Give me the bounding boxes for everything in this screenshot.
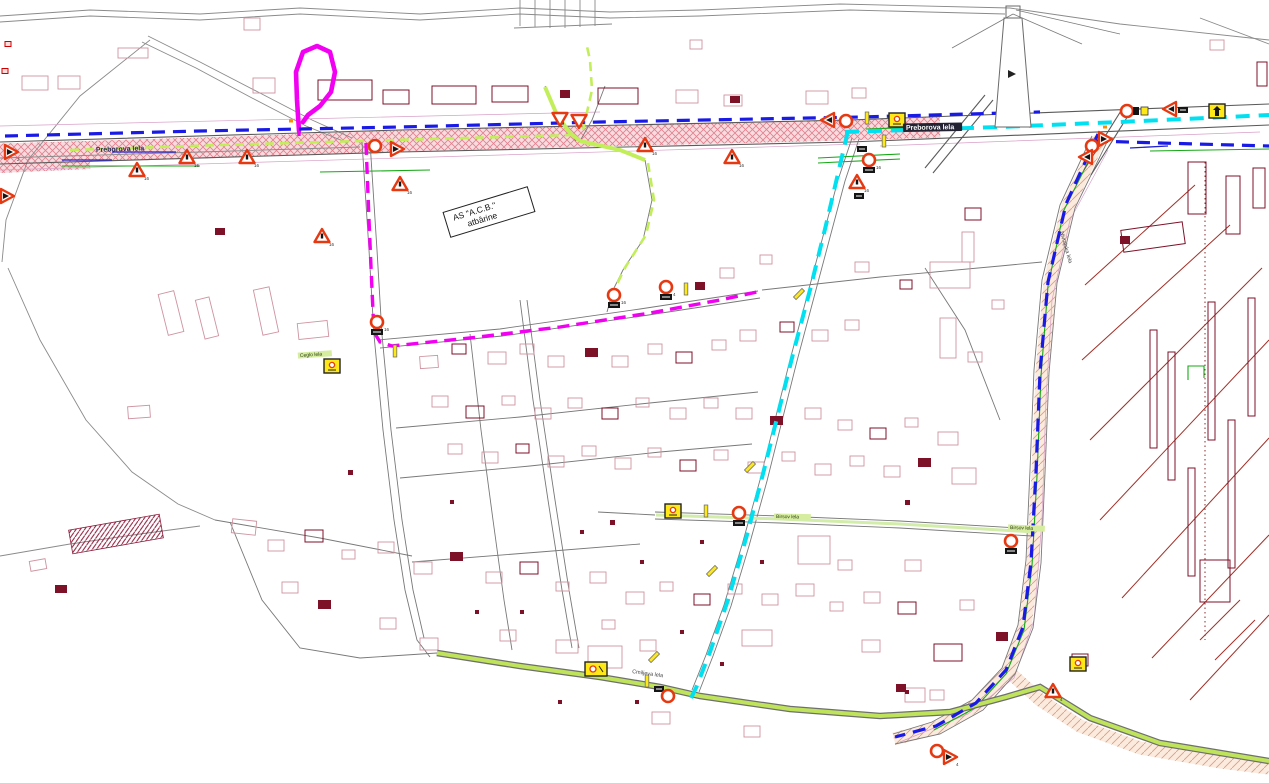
building-outline — [466, 406, 484, 418]
map-line — [527, 300, 579, 648]
building-outline — [670, 408, 686, 419]
map-line — [1152, 535, 1269, 658]
building-outline — [898, 602, 916, 614]
building-outline — [1253, 168, 1265, 208]
map-line — [762, 262, 1042, 290]
map-line — [692, 138, 852, 690]
map-line — [818, 154, 900, 158]
building-outline — [962, 232, 974, 262]
building-outline — [884, 466, 900, 477]
building-outline — [812, 330, 828, 341]
sign-plate — [854, 193, 864, 199]
building-outline — [930, 262, 970, 288]
sign-number-tag: 4 — [673, 292, 676, 297]
building-outline — [855, 262, 869, 272]
acb-label-box: AS "A.C.B."atbârine — [443, 187, 535, 238]
sign-tri: 16 — [393, 177, 413, 195]
building-outline — [676, 90, 698, 103]
sign-number-tag: 16 — [407, 190, 413, 195]
sign-circle — [662, 690, 674, 702]
map-line — [613, 160, 652, 290]
building-outline — [660, 582, 673, 591]
building-outline — [850, 456, 864, 466]
building-outline — [448, 444, 462, 454]
sign-tri: 16 — [850, 175, 870, 193]
building-outline — [118, 48, 148, 58]
building-outline — [905, 560, 921, 571]
sign-barD — [744, 461, 755, 472]
sign-circleP: 16 — [371, 316, 390, 335]
building-outline — [905, 418, 918, 427]
building-outline — [420, 355, 439, 368]
building-outline — [780, 322, 794, 332]
building-outline — [918, 458, 931, 467]
building-outline — [231, 519, 256, 535]
building-outline — [488, 352, 506, 364]
building-outline — [806, 91, 828, 104]
street-label: Birsov lela — [774, 513, 811, 520]
sign-number-tag: 16 — [621, 300, 627, 305]
map-line — [396, 392, 758, 428]
sign-circle — [840, 115, 852, 127]
map-line — [320, 170, 430, 172]
building-outline — [420, 638, 438, 650]
building-outline — [996, 632, 1008, 641]
building-outline — [268, 540, 284, 551]
building-outline — [636, 398, 649, 407]
map-line — [900, 150, 1108, 742]
route-mag — [366, 143, 757, 346]
route-cyan — [690, 131, 848, 700]
building-outline — [720, 268, 734, 278]
building-outline — [798, 536, 830, 564]
building-outline — [582, 446, 596, 456]
building-outline — [58, 76, 80, 89]
building-outline — [870, 428, 886, 439]
building-outline — [845, 320, 859, 330]
building-outline — [796, 584, 814, 596]
building-outline — [694, 594, 710, 605]
sign-circle — [369, 140, 381, 152]
building-outline — [1168, 352, 1175, 480]
sign-plate — [1178, 107, 1188, 113]
building-outline — [486, 572, 502, 583]
sign-bar — [704, 505, 708, 517]
building-outline — [862, 640, 880, 652]
map-line — [370, 142, 424, 638]
building-outline — [742, 630, 772, 646]
sign-barD — [706, 565, 717, 576]
map-line — [700, 4, 1010, 10]
svg-text:Preborova lela: Preborova lela — [906, 124, 954, 132]
building-outline — [615, 458, 631, 469]
building-outline — [762, 594, 778, 605]
map-line — [362, 142, 430, 657]
sign-circle — [1121, 105, 1133, 117]
sign-number-tag: 4 — [956, 762, 959, 767]
map-line — [1085, 185, 1195, 285]
sign-bar — [393, 345, 397, 357]
svg-text:Birsov lela: Birsov lela — [1010, 525, 1033, 532]
sign-dotO — [289, 120, 293, 123]
building-outline — [500, 630, 516, 641]
sign-plate — [857, 146, 867, 152]
building-outline — [590, 572, 606, 583]
sign-barD — [793, 288, 804, 299]
sign-bar — [684, 283, 688, 295]
svg-text:Birsov lela: Birsov lela — [776, 514, 799, 520]
building-outline — [940, 318, 956, 358]
building-outline — [414, 562, 432, 574]
building-outline — [680, 630, 684, 634]
building-outline — [838, 560, 852, 570]
building-outline — [652, 712, 670, 724]
building-outline — [432, 396, 448, 407]
building-outline — [938, 432, 958, 445]
building-outline — [568, 398, 582, 408]
map-line — [895, 140, 1108, 744]
building-outline — [900, 280, 912, 289]
building-outline — [318, 600, 331, 609]
building-outline — [556, 640, 578, 653]
map-line — [598, 512, 655, 515]
sign-bar — [882, 135, 886, 147]
traffic-plan-map: 21616161616161616161616444 Preborova lel… — [0, 0, 1269, 783]
building-outline — [556, 582, 569, 591]
map-line — [1090, 268, 1262, 440]
route-ltg — [614, 163, 654, 290]
map-line — [470, 334, 512, 650]
sign-dotO — [1103, 126, 1107, 129]
road-band — [894, 138, 1100, 739]
building-outline — [516, 444, 529, 453]
svg-text:Ceglo lela: Ceglo lela — [300, 351, 323, 359]
building-outline — [690, 40, 702, 49]
map-line — [1190, 615, 1269, 700]
building-outline — [695, 282, 705, 290]
building-outline — [29, 559, 46, 572]
building-outline — [548, 356, 564, 367]
building-outline — [475, 610, 479, 614]
building-outline — [760, 560, 764, 564]
building-outline — [602, 620, 615, 629]
building-outline — [1210, 40, 1224, 50]
sign-number-tag: 16 — [864, 188, 870, 193]
building-outline — [1226, 176, 1240, 234]
sign-tri: 16 — [725, 150, 745, 168]
building-outline — [342, 550, 355, 559]
building-outline — [244, 18, 260, 30]
building-outline — [952, 468, 976, 484]
sign-plate2 — [1133, 107, 1148, 115]
building-outline — [700, 540, 704, 544]
sign-number-tag: 16 — [329, 242, 335, 247]
building-outline — [215, 228, 225, 235]
sign-number-tag: 16 — [144, 176, 150, 181]
sign-boardC — [585, 662, 607, 676]
building-outline — [195, 297, 218, 339]
building-outline — [815, 464, 831, 475]
building-outline — [680, 460, 696, 471]
building-outline — [712, 340, 726, 350]
sign-board — [665, 504, 681, 518]
building-outline — [282, 582, 298, 593]
building-outline — [548, 456, 564, 467]
sign-plateR — [5, 42, 11, 47]
building-outline — [22, 76, 48, 90]
building-outline — [730, 96, 740, 103]
route-gstreet — [656, 515, 1034, 532]
map-line — [1100, 340, 1269, 520]
building-outline — [640, 560, 644, 564]
building-outline — [1150, 330, 1157, 448]
sign-circleP: 4 — [660, 281, 676, 300]
building-outline — [560, 90, 570, 98]
building-outline — [520, 562, 538, 574]
map-canvas: 21616161616161616161616444 Preborova lel… — [0, 0, 1269, 783]
building-outline — [610, 520, 615, 525]
building-outline — [930, 690, 944, 700]
building-outline — [297, 320, 329, 339]
building-outline — [838, 420, 852, 430]
building-outline — [1120, 236, 1130, 244]
building-outline — [635, 700, 639, 704]
building-outline — [992, 300, 1004, 309]
building-outline — [676, 352, 692, 363]
building-outline — [558, 700, 562, 704]
map-line — [412, 544, 640, 562]
sign-number-tag: 16 — [194, 163, 200, 168]
building-outline — [864, 592, 880, 603]
building-outline — [714, 450, 728, 460]
map-line — [818, 159, 900, 163]
building-outline — [934, 644, 962, 661]
map-line — [1215, 620, 1255, 660]
building-outline — [905, 690, 909, 694]
building-outline — [502, 396, 515, 405]
map-line — [1188, 366, 1204, 380]
building-outline — [128, 405, 151, 419]
street-label: Preborova lela — [903, 123, 962, 133]
building-outline — [158, 291, 184, 336]
building-outline — [1188, 162, 1206, 214]
building-outline — [602, 408, 618, 419]
building-outline — [1248, 298, 1255, 416]
street-label: Birsov lela — [1008, 524, 1045, 532]
building-outline — [852, 88, 866, 98]
street-label: Ceglo lela — [298, 350, 332, 359]
map-line — [378, 291, 758, 340]
building-outline — [736, 408, 752, 419]
sign-circleP — [1005, 535, 1017, 554]
building-outline — [612, 356, 628, 367]
sign-triR: 4 — [944, 750, 959, 767]
building-outline — [1257, 62, 1267, 86]
sign-barD — [648, 651, 659, 662]
building-outline — [805, 408, 821, 419]
sign-number-tag: 16 — [739, 163, 745, 168]
chimney-structure — [952, 6, 1120, 127]
building-outline — [450, 500, 454, 504]
sign-bar — [865, 112, 869, 124]
route-blueA — [1095, 141, 1269, 146]
building-outline — [648, 344, 662, 354]
sign-circleP: 16 — [608, 289, 627, 308]
sign-tri: 16 — [315, 229, 335, 247]
map-line — [142, 42, 348, 143]
map-line — [700, 10, 1005, 16]
building-outline — [598, 88, 638, 104]
map-line — [1010, 8, 1269, 40]
sign-plateR — [2, 69, 8, 74]
building-outline — [492, 86, 528, 102]
building-outline — [744, 726, 760, 737]
building-outline — [1228, 420, 1235, 568]
building-outline — [720, 662, 724, 666]
sign-board — [324, 359, 340, 373]
building-outline — [782, 452, 795, 461]
map-line — [520, 300, 572, 648]
building-outline — [253, 287, 278, 335]
sign-circleP: 16 — [863, 154, 882, 173]
building-outline — [740, 330, 756, 341]
sign-number-tag: 16 — [254, 163, 260, 168]
building-outline — [965, 208, 981, 220]
map-line — [1200, 600, 1240, 640]
building-outline — [960, 600, 974, 610]
building-outline — [1208, 302, 1215, 440]
building-outline — [380, 618, 396, 629]
map-line — [148, 36, 352, 138]
sign-board — [1070, 657, 1086, 671]
sign-number-tag: 16 — [652, 151, 658, 156]
building-outline — [55, 585, 67, 593]
linework-layer — [0, 0, 1269, 744]
map-line — [400, 444, 752, 478]
building-outline — [640, 640, 656, 651]
building-outline — [452, 344, 466, 354]
building-outline — [585, 348, 598, 357]
sign-plate — [654, 686, 664, 692]
building-outline — [830, 602, 843, 611]
building-outline — [760, 255, 772, 264]
building-outline — [580, 530, 584, 534]
map-line — [925, 268, 1000, 420]
building-outline — [69, 514, 164, 554]
sign-number-tag: 16 — [384, 327, 390, 332]
sign-boardA — [1209, 104, 1225, 118]
sign-circleP — [733, 507, 745, 526]
sign-circle — [931, 745, 943, 757]
building-outline — [626, 592, 644, 604]
map-line — [215, 520, 412, 556]
sign-triL — [1163, 102, 1176, 116]
sign-triR — [1, 189, 14, 203]
building-outline — [520, 610, 524, 614]
building-outline — [905, 500, 910, 505]
building-outline — [432, 86, 476, 104]
map-line — [514, 24, 612, 28]
building-outline — [704, 398, 718, 408]
map-line — [1150, 149, 1269, 151]
map-line — [1130, 146, 1168, 148]
building-outline — [896, 684, 906, 692]
building-outline — [383, 90, 409, 104]
street-labels-layer: Preborova lelaPreborova lelaNivrajska le… — [96, 123, 1073, 680]
building-outline — [968, 352, 982, 362]
building-outline — [348, 470, 353, 475]
sign-number-tag: 16 — [876, 165, 882, 170]
sign-board — [889, 113, 905, 127]
map-line — [8, 268, 215, 520]
building-outline — [1121, 222, 1185, 252]
building-outline — [450, 552, 463, 561]
